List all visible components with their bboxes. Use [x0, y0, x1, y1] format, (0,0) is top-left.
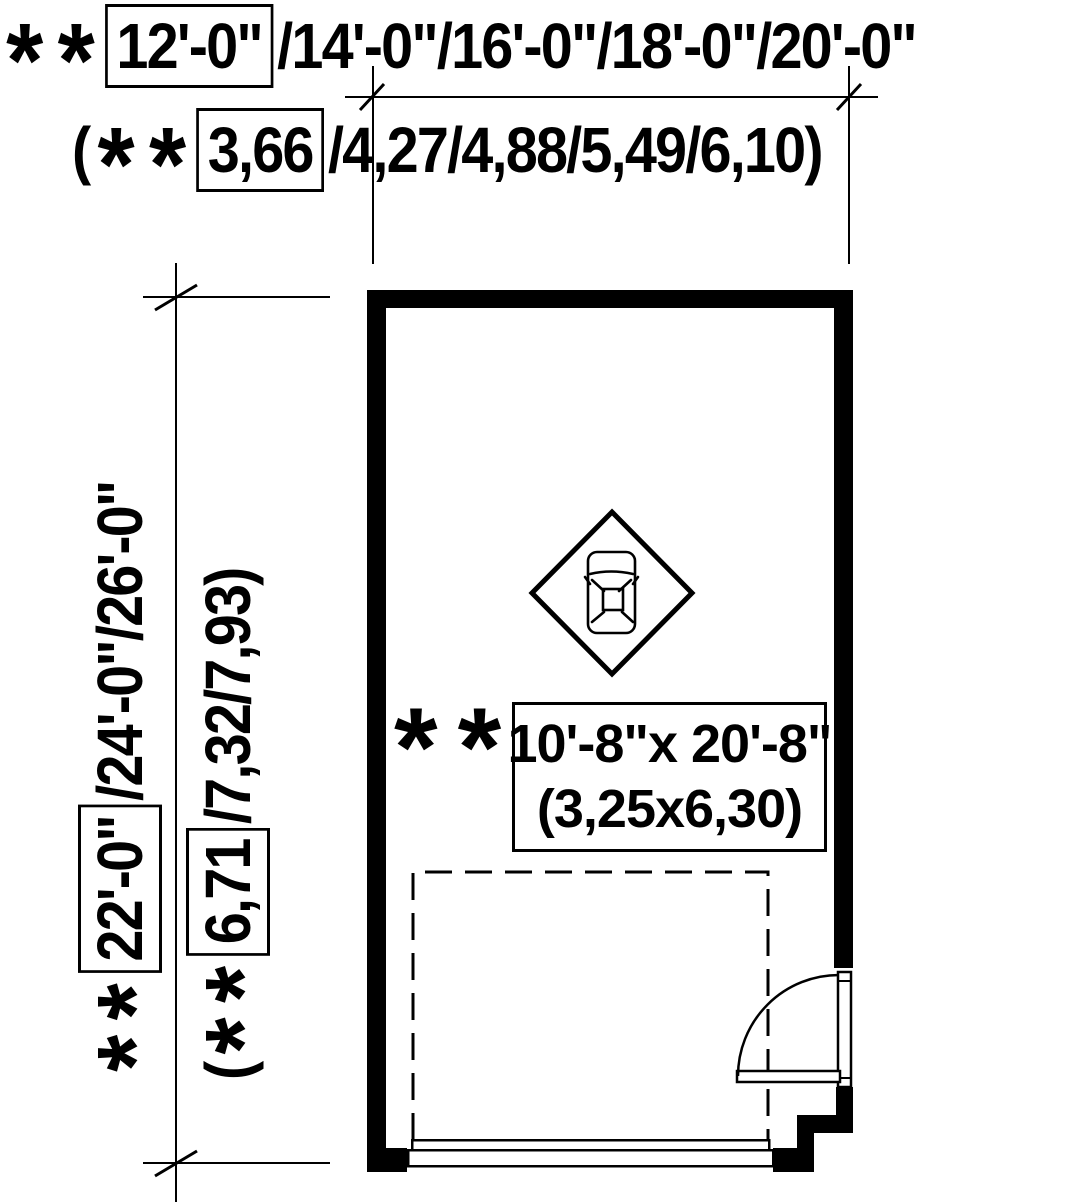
asterisk-icon: *: [458, 706, 502, 790]
left-dim-meters-alternatives: /7,32/7,93): [196, 568, 260, 824]
asterisk-icon: *: [97, 122, 132, 208]
garage-size-imperial: 10'-8"x 20'-8": [507, 712, 831, 777]
side-door: [737, 972, 851, 1087]
asterisk-icon: *: [394, 706, 438, 790]
left-dim-meters-boxed-value: 6,71: [186, 828, 270, 956]
asterisk-icon: *: [92, 985, 178, 1020]
garage-size-asterisks: * *: [384, 692, 511, 776]
top-dim-feet-row: ** 12'-0" /14'-0"/16'-0"/18'-0"/20'-0": [0, 2, 916, 90]
car-rear-window: [592, 612, 633, 622]
wall-right-stepped-corner: [773, 1087, 853, 1172]
car-icon: [585, 552, 638, 633]
garage-size-metric: (3,25x6,30): [537, 777, 802, 842]
wall-right: [834, 290, 853, 968]
car-diamond-marker: [532, 512, 692, 674]
wall-left-foot: [367, 1148, 407, 1172]
open-paren: (: [196, 1063, 260, 1080]
asterisk-icon: *: [6, 18, 41, 104]
floor-plan-page: ** 12'-0" /14'-0"/16'-0"/18'-0"/20'-0" (…: [0, 0, 1080, 1203]
garage-door: [408, 1140, 773, 1166]
side-door-leaf: [737, 1071, 840, 1082]
left-dim-feet-alternatives: /24'-0"/26'-0": [88, 481, 152, 800]
asterisk-icon: *: [58, 18, 93, 104]
door-swing-arc: [738, 975, 839, 1076]
garage-door-clearance-dashed: [413, 872, 768, 1140]
top-dim-feet-boxed-value: 12'-0": [105, 4, 274, 88]
asterisk-icon: *: [200, 1019, 286, 1054]
asterisk-icon: *: [200, 968, 286, 1003]
top-dim-feet-alternatives: /14'-0"/16'-0"/18'-0"/20'-0": [277, 14, 916, 78]
top-dim-meters-alternatives: /4,27/4,88/5,49/6,10): [328, 118, 822, 182]
car-hood-line: [590, 572, 633, 575]
top-dim-meters-row: (** 3,66 /4,27/4,88/5,49/6,10): [72, 106, 822, 194]
left-dim-meters-row: (** 6,71 /7,32/7,93): [184, 568, 272, 1080]
left-dim-feet-row: ** 22'-0" /24'-0"/26'-0": [76, 481, 164, 1080]
garage-size-label-box: 10'-8"x 20'-8" (3,25x6,30): [512, 702, 827, 852]
asterisk-icon: *: [92, 1037, 178, 1072]
wall-top: [367, 290, 853, 308]
open-paren: (: [72, 118, 89, 182]
left-dim-feet-boxed-value: 22'-0": [78, 804, 162, 973]
asterisk-icon: *: [149, 122, 184, 208]
car-cabin: [603, 589, 623, 610]
top-dim-meters-boxed-value: 3,66: [196, 108, 324, 192]
